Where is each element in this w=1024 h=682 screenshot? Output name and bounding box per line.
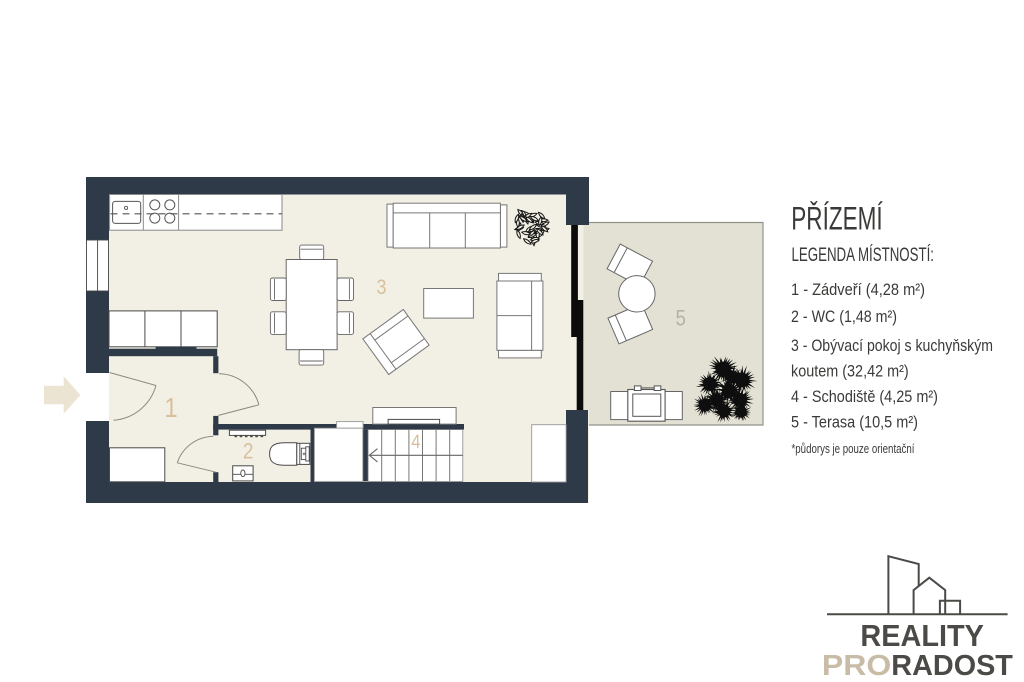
- svg-text:LEGENDA MÍSTNOSTÍ:: LEGENDA MÍSTNOSTÍ:: [792, 243, 935, 266]
- svg-text:4 - Schodiště (4,25 m²): 4 - Schodiště (4,25 m²): [791, 388, 938, 406]
- svg-text:PRO: PRO: [822, 650, 891, 682]
- svg-text:3 - Obývací pokoj s kuchyňským: 3 - Obývací pokoj s kuchyňským: [791, 337, 993, 355]
- svg-text:2: 2: [243, 440, 253, 464]
- svg-text:4: 4: [411, 431, 420, 453]
- svg-text:1: 1: [164, 391, 177, 423]
- svg-text:koutem (32,42 m²): koutem (32,42 m²): [791, 363, 909, 381]
- svg-text:5 - Terasa (10,5 m²): 5 - Terasa (10,5 m²): [791, 414, 918, 432]
- svg-text:2 - WC (1,48 m²): 2 - WC (1,48 m²): [791, 308, 897, 326]
- svg-text:PŘÍZEMÍ: PŘÍZEMÍ: [791, 200, 882, 236]
- svg-text:1 - Zádveří (4,28 m²): 1 - Zádveří (4,28 m²): [791, 281, 925, 299]
- svg-text:*půdorys je pouze orientační: *půdorys je pouze orientační: [792, 441, 915, 456]
- svg-text:REALITY: REALITY: [860, 620, 984, 653]
- svg-text:3: 3: [376, 276, 386, 300]
- svg-text:5: 5: [675, 307, 685, 331]
- svg-text:RADOST: RADOST: [891, 650, 1013, 682]
